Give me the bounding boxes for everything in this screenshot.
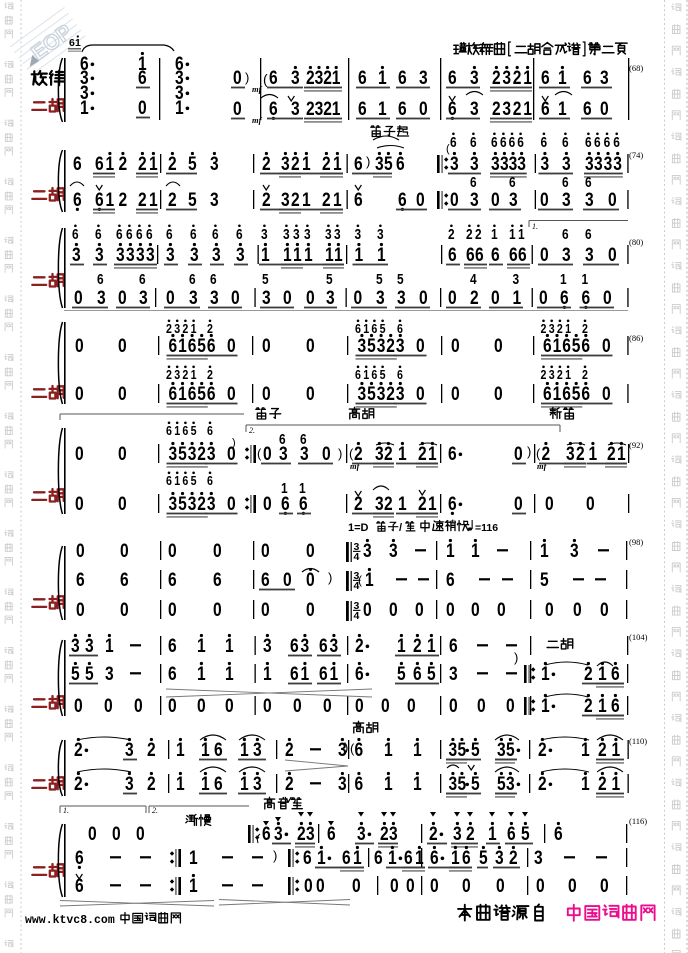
svg-text:5: 5 — [367, 335, 376, 357]
svg-text:3: 3 — [283, 226, 290, 242]
svg-text:2: 2 — [598, 773, 607, 795]
svg-text:1: 1 — [197, 635, 206, 657]
svg-text:5: 5 — [367, 383, 376, 405]
svg-text:0: 0 — [168, 695, 177, 717]
svg-text:0: 0 — [168, 540, 177, 562]
svg-text:2: 2 — [74, 739, 83, 761]
svg-text:0: 0 — [75, 335, 84, 357]
svg-text:1: 1 — [612, 739, 621, 761]
svg-text:3: 3 — [97, 287, 106, 309]
svg-text:0: 0 — [568, 875, 577, 897]
svg-text:1: 1 — [384, 739, 393, 761]
svg-text:3: 3 — [188, 443, 197, 465]
svg-text:1: 1 — [189, 875, 198, 897]
svg-text:1: 1 — [513, 287, 522, 309]
svg-text:2: 2 — [413, 635, 422, 657]
svg-text:1: 1 — [106, 153, 115, 175]
svg-text:0: 0 — [76, 540, 85, 562]
svg-text:3: 3 — [338, 773, 347, 795]
svg-text:1: 1 — [413, 773, 422, 795]
svg-text:6: 6 — [214, 739, 223, 761]
svg-text:6: 6 — [214, 773, 223, 795]
svg-text:0: 0 — [118, 493, 127, 515]
svg-text:1: 1 — [565, 367, 571, 382]
svg-text:6: 6 — [136, 226, 143, 242]
svg-text:0: 0 — [138, 97, 147, 119]
svg-text:0: 0 — [494, 335, 503, 357]
svg-text:0: 0 — [416, 383, 425, 405]
svg-text:1: 1 — [540, 540, 549, 562]
svg-text:1: 1 — [330, 663, 339, 685]
svg-text:0: 0 — [104, 695, 113, 717]
svg-text:1: 1 — [355, 244, 364, 266]
svg-text:): ) — [366, 154, 370, 169]
svg-text:3: 3 — [449, 773, 458, 795]
svg-text:1: 1 — [523, 67, 532, 89]
svg-text:6: 6 — [146, 226, 153, 242]
svg-text:1: 1 — [428, 443, 437, 465]
svg-text:2: 2 — [386, 335, 395, 357]
svg-text:1: 1 — [333, 153, 342, 175]
svg-text:6: 6 — [466, 244, 475, 266]
svg-text:6: 6 — [126, 226, 133, 242]
svg-text:1: 1 — [558, 67, 567, 89]
svg-text:3: 3 — [502, 98, 511, 120]
svg-text:3: 3 — [126, 244, 135, 266]
svg-text:3: 3 — [541, 153, 550, 175]
svg-text:2: 2 — [147, 773, 156, 795]
svg-text:0: 0 — [197, 695, 206, 717]
svg-text:1: 1 — [363, 367, 369, 382]
svg-text:6: 6 — [188, 335, 197, 357]
svg-text:(92): (92) — [629, 440, 643, 450]
svg-text:6: 6 — [397, 321, 403, 336]
svg-text:3: 3 — [470, 153, 479, 175]
svg-text:0: 0 — [283, 569, 292, 591]
svg-text:3: 3 — [116, 244, 125, 266]
svg-text:1: 1 — [491, 226, 498, 242]
svg-text:5: 5 — [572, 383, 581, 405]
svg-text:2: 2 — [197, 443, 206, 465]
svg-text:3: 3 — [139, 287, 148, 309]
svg-text:2: 2 — [384, 493, 393, 515]
svg-text:1: 1 — [471, 540, 480, 562]
svg-text:6: 6 — [327, 823, 336, 845]
svg-text:0: 0 — [168, 599, 177, 621]
svg-text:1: 1 — [293, 244, 302, 266]
svg-text:3: 3 — [506, 773, 515, 795]
svg-text:1: 1 — [175, 97, 184, 119]
svg-text:0: 0 — [389, 599, 398, 621]
svg-text:3: 3 — [253, 773, 262, 795]
svg-text:0: 0 — [262, 383, 271, 405]
svg-text:0: 0 — [112, 823, 121, 845]
svg-text:1: 1 — [451, 847, 460, 869]
svg-text:6: 6 — [261, 569, 270, 591]
svg-text:2: 2 — [262, 189, 271, 211]
svg-text:1: 1 — [581, 739, 590, 761]
svg-text:1: 1 — [581, 773, 590, 795]
svg-text:3: 3 — [449, 739, 458, 761]
svg-text:6: 6 — [212, 226, 219, 242]
svg-text:6: 6 — [581, 335, 590, 357]
svg-text:1: 1 — [281, 480, 288, 496]
svg-text:2: 2 — [541, 367, 547, 382]
svg-text:0: 0 — [306, 540, 315, 562]
svg-text:1: 1 — [413, 739, 422, 761]
svg-text:6: 6 — [541, 67, 550, 89]
svg-text:0: 0 — [74, 287, 83, 309]
svg-text:0: 0 — [608, 244, 617, 266]
svg-text:1: 1 — [446, 540, 455, 562]
svg-text:6: 6 — [319, 663, 328, 685]
svg-text:0: 0 — [213, 540, 222, 562]
svg-text:6: 6 — [319, 635, 328, 657]
svg-text:0: 0 — [166, 287, 175, 309]
svg-text:0: 0 — [540, 244, 549, 266]
svg-text:6: 6 — [75, 847, 84, 869]
svg-text:0: 0 — [451, 383, 460, 405]
svg-text:1: 1 — [299, 480, 306, 496]
svg-text:3: 3 — [453, 823, 462, 845]
svg-text:6: 6 — [236, 226, 243, 242]
svg-text:1: 1 — [302, 153, 311, 175]
svg-text:0: 0 — [416, 189, 425, 211]
svg-text:6: 6 — [168, 635, 177, 657]
svg-text:6: 6 — [97, 271, 104, 287]
svg-text:6: 6 — [262, 823, 271, 845]
svg-text:2: 2 — [542, 443, 551, 465]
svg-text:0: 0 — [491, 287, 500, 309]
svg-text:3: 3 — [585, 153, 594, 175]
svg-text:1: 1 — [189, 847, 198, 869]
svg-text:/: / — [399, 522, 402, 534]
svg-text:0: 0 — [233, 98, 242, 120]
svg-text:0: 0 — [602, 383, 611, 405]
svg-text:(80): (80) — [629, 237, 643, 247]
svg-text:(86): (86) — [629, 333, 643, 343]
svg-text:5: 5 — [191, 473, 197, 488]
svg-text:1: 1 — [378, 67, 387, 89]
svg-text:5: 5 — [376, 271, 383, 287]
svg-text:1: 1 — [553, 383, 562, 405]
svg-text:2: 2 — [147, 739, 156, 761]
svg-text:=116: =116 — [475, 522, 498, 534]
svg-text:3: 3 — [363, 540, 372, 562]
svg-text:2: 2 — [166, 321, 172, 336]
svg-text:0: 0 — [573, 599, 582, 621]
svg-text:6: 6 — [166, 226, 173, 242]
svg-text:6: 6 — [398, 189, 407, 211]
svg-text:0: 0 — [355, 695, 364, 717]
svg-text:3: 3 — [449, 663, 458, 685]
svg-text:6: 6 — [355, 663, 364, 685]
svg-text:1: 1 — [201, 773, 210, 795]
svg-text:2: 2 — [197, 493, 206, 515]
svg-text:3: 3 — [207, 493, 216, 515]
svg-text:6: 6 — [358, 98, 367, 120]
svg-text:6: 6 — [583, 67, 592, 89]
svg-text:1: 1 — [332, 67, 341, 89]
svg-text:2: 2 — [598, 739, 607, 761]
svg-text:2: 2 — [607, 443, 616, 465]
svg-text:3: 3 — [470, 67, 479, 89]
svg-text:2: 2 — [475, 226, 482, 242]
svg-text:3: 3 — [502, 67, 511, 89]
svg-text:0: 0 — [415, 599, 424, 621]
svg-text:1: 1 — [283, 244, 292, 266]
svg-text:6: 6 — [613, 134, 620, 150]
svg-text:3: 3 — [566, 443, 575, 465]
svg-text:6: 6 — [491, 244, 500, 266]
svg-text:5: 5 — [521, 823, 530, 845]
svg-text:0: 0 — [446, 599, 455, 621]
svg-text:(104): (104) — [629, 632, 648, 642]
svg-text:3: 3 — [281, 153, 290, 175]
svg-text:): ) — [514, 650, 518, 665]
svg-text:0: 0 — [306, 287, 315, 309]
svg-text:3: 3 — [189, 287, 198, 309]
svg-text:3: 3 — [281, 189, 290, 211]
svg-text:0: 0 — [603, 287, 612, 309]
svg-text:6: 6 — [168, 569, 177, 591]
svg-text:1: 1 — [174, 423, 180, 438]
svg-text:5: 5 — [397, 663, 406, 685]
svg-text:2: 2 — [74, 773, 83, 795]
svg-text:6: 6 — [509, 244, 518, 266]
svg-text:1: 1 — [541, 663, 550, 685]
svg-text:): ) — [328, 570, 332, 585]
svg-text:2: 2 — [582, 321, 588, 336]
svg-text:3: 3 — [375, 443, 384, 465]
svg-text:6: 6 — [189, 271, 196, 287]
svg-text:3: 3 — [146, 244, 155, 266]
svg-text:0: 0 — [514, 493, 523, 515]
svg-text:0: 0 — [322, 443, 331, 465]
svg-text:1: 1 — [149, 189, 158, 211]
svg-text:3: 3 — [396, 335, 405, 357]
svg-text:5: 5 — [427, 663, 436, 685]
svg-text:0: 0 — [352, 875, 361, 897]
svg-text:2: 2 — [323, 67, 332, 89]
svg-text:6: 6 — [116, 226, 123, 242]
svg-text:6: 6 — [76, 569, 85, 591]
svg-text:0: 0 — [536, 875, 545, 897]
svg-text:0: 0 — [118, 443, 127, 465]
svg-text:3: 3 — [304, 226, 311, 242]
svg-text:0: 0 — [323, 695, 332, 717]
svg-text:0: 0 — [471, 599, 480, 621]
svg-text:2: 2 — [513, 98, 522, 120]
svg-text:3: 3 — [419, 67, 428, 89]
svg-text:6: 6 — [300, 431, 307, 447]
svg-text:3: 3 — [497, 739, 506, 761]
svg-text:6: 6 — [518, 244, 527, 266]
svg-text:3: 3 — [207, 443, 216, 465]
svg-text:3: 3 — [562, 153, 571, 175]
svg-text:1: 1 — [598, 663, 607, 685]
svg-text:6: 6 — [448, 67, 457, 89]
svg-text:0: 0 — [306, 569, 315, 591]
svg-text:3: 3 — [95, 244, 104, 266]
svg-text:2: 2 — [576, 443, 585, 465]
svg-text:0: 0 — [602, 335, 611, 357]
svg-text:0: 0 — [263, 695, 272, 717]
svg-text:3: 3 — [562, 189, 571, 211]
svg-text:6: 6 — [594, 134, 601, 150]
svg-text:3: 3 — [509, 153, 518, 175]
svg-text:2: 2 — [429, 823, 438, 845]
svg-text:6: 6 — [354, 153, 363, 175]
svg-text:2: 2 — [322, 153, 331, 175]
svg-text:0: 0 — [306, 383, 315, 405]
svg-text:0: 0 — [545, 493, 554, 515]
svg-text:1: 1 — [365, 569, 374, 591]
svg-text:0: 0 — [227, 383, 236, 405]
svg-text:1: 1 — [225, 663, 234, 685]
svg-text:1: 1 — [261, 244, 270, 266]
svg-text:2: 2 — [557, 367, 563, 382]
svg-text:0: 0 — [120, 540, 129, 562]
svg-text:0: 0 — [261, 599, 270, 621]
svg-text:3: 3 — [190, 244, 199, 266]
svg-text:3: 3 — [376, 287, 385, 309]
svg-text:6: 6 — [354, 189, 363, 211]
svg-text:1: 1 — [558, 98, 567, 120]
svg-text:6: 6 — [491, 134, 498, 150]
svg-text:1: 1 — [176, 773, 185, 795]
svg-text:1.: 1. — [63, 806, 69, 815]
svg-text:2: 2 — [466, 226, 473, 242]
svg-text:6: 6 — [355, 773, 364, 795]
svg-text:0: 0 — [263, 493, 272, 515]
svg-text:2: 2 — [291, 189, 300, 211]
svg-text:1: 1 — [377, 244, 386, 266]
svg-text:0: 0 — [600, 599, 609, 621]
svg-text:6: 6 — [396, 153, 405, 175]
svg-text:0: 0 — [304, 875, 313, 897]
svg-text:3: 3 — [85, 635, 94, 657]
svg-text:1: 1 — [397, 635, 406, 657]
svg-text:2: 2 — [380, 823, 389, 845]
svg-text:3: 3 — [585, 244, 594, 266]
svg-text:3: 3 — [210, 287, 219, 309]
svg-text:6: 6 — [448, 244, 457, 266]
svg-text:mf: mf — [252, 84, 263, 94]
svg-text:0: 0 — [75, 493, 84, 515]
svg-text:1: 1 — [363, 321, 369, 336]
svg-text:0: 0 — [416, 335, 425, 357]
svg-text:3: 3 — [470, 189, 479, 211]
svg-text:3: 3 — [210, 189, 219, 211]
svg-text:6: 6 — [182, 423, 188, 438]
svg-text:3: 3 — [212, 244, 221, 266]
svg-text:3: 3 — [534, 847, 543, 869]
svg-text:3: 3 — [562, 244, 571, 266]
svg-text:3: 3 — [306, 823, 315, 845]
svg-text:6: 6 — [290, 635, 299, 657]
svg-text:1: 1 — [240, 773, 249, 795]
svg-text:6: 6 — [95, 226, 102, 242]
svg-text:): ) — [338, 446, 342, 461]
svg-text:1: 1 — [582, 271, 589, 287]
svg-text:2: 2 — [466, 823, 475, 845]
svg-text:2: 2 — [207, 367, 213, 382]
svg-text:3: 3 — [210, 153, 219, 175]
svg-text:5: 5 — [384, 153, 393, 175]
svg-text:3: 3 — [389, 540, 398, 562]
svg-text:6: 6 — [562, 335, 571, 357]
svg-text:1: 1 — [178, 335, 187, 357]
svg-text:0: 0 — [448, 287, 457, 309]
svg-text:6: 6 — [448, 443, 457, 465]
svg-text:3: 3 — [169, 493, 178, 515]
svg-text:6: 6 — [585, 226, 592, 242]
svg-text:6: 6 — [611, 695, 620, 717]
svg-text:6: 6 — [404, 847, 413, 869]
svg-text:0: 0 — [506, 695, 515, 717]
svg-text:3: 3 — [549, 367, 555, 382]
svg-text:3: 3 — [613, 153, 622, 175]
svg-text:3: 3 — [517, 153, 526, 175]
svg-text:1: 1 — [488, 823, 497, 845]
svg-text:3: 3 — [188, 493, 197, 515]
svg-text:3: 3 — [291, 98, 300, 120]
svg-text:6: 6 — [582, 287, 591, 309]
svg-text:1: 1 — [428, 493, 437, 515]
svg-text:0: 0 — [419, 287, 428, 309]
svg-text:6: 6 — [342, 847, 351, 869]
svg-text:6: 6 — [355, 739, 364, 761]
svg-text:5: 5 — [471, 773, 480, 795]
svg-text:1: 1 — [398, 493, 407, 515]
svg-text:6: 6 — [138, 67, 147, 89]
svg-text:1: 1 — [197, 663, 206, 685]
svg-text:6: 6 — [73, 153, 82, 175]
svg-text:0: 0 — [283, 287, 292, 309]
svg-text:3: 3 — [396, 383, 405, 405]
svg-text:0: 0 — [381, 695, 390, 717]
svg-text:6: 6 — [72, 226, 79, 242]
svg-text:0: 0 — [306, 335, 315, 357]
svg-text:0: 0 — [293, 695, 302, 717]
svg-text:2: 2 — [322, 189, 331, 211]
svg-text:3: 3 — [549, 321, 555, 336]
svg-text:6: 6 — [166, 423, 172, 438]
svg-text:2: 2 — [297, 823, 306, 845]
svg-text:0: 0 — [406, 875, 415, 897]
svg-text:3: 3 — [334, 226, 341, 242]
svg-text:6: 6 — [462, 847, 471, 869]
svg-text:6: 6 — [507, 823, 516, 845]
svg-text:3: 3 — [261, 226, 268, 242]
svg-text:6: 6 — [166, 473, 172, 488]
svg-text:1: 1 — [302, 189, 311, 211]
svg-text:2: 2 — [285, 773, 294, 795]
svg-text:6: 6 — [190, 226, 197, 242]
svg-text:5: 5 — [380, 367, 386, 382]
svg-text:4: 4 — [354, 551, 360, 563]
svg-text:6: 6 — [397, 367, 403, 382]
svg-text:6: 6 — [541, 134, 548, 150]
svg-text:5: 5 — [458, 739, 467, 761]
svg-text:1: 1 — [317, 847, 326, 869]
svg-text:(: ( — [350, 741, 355, 756]
svg-text:1: 1 — [240, 739, 249, 761]
svg-text:6: 6 — [371, 367, 377, 382]
svg-text:0: 0 — [225, 695, 234, 717]
svg-text:0: 0 — [74, 695, 83, 717]
